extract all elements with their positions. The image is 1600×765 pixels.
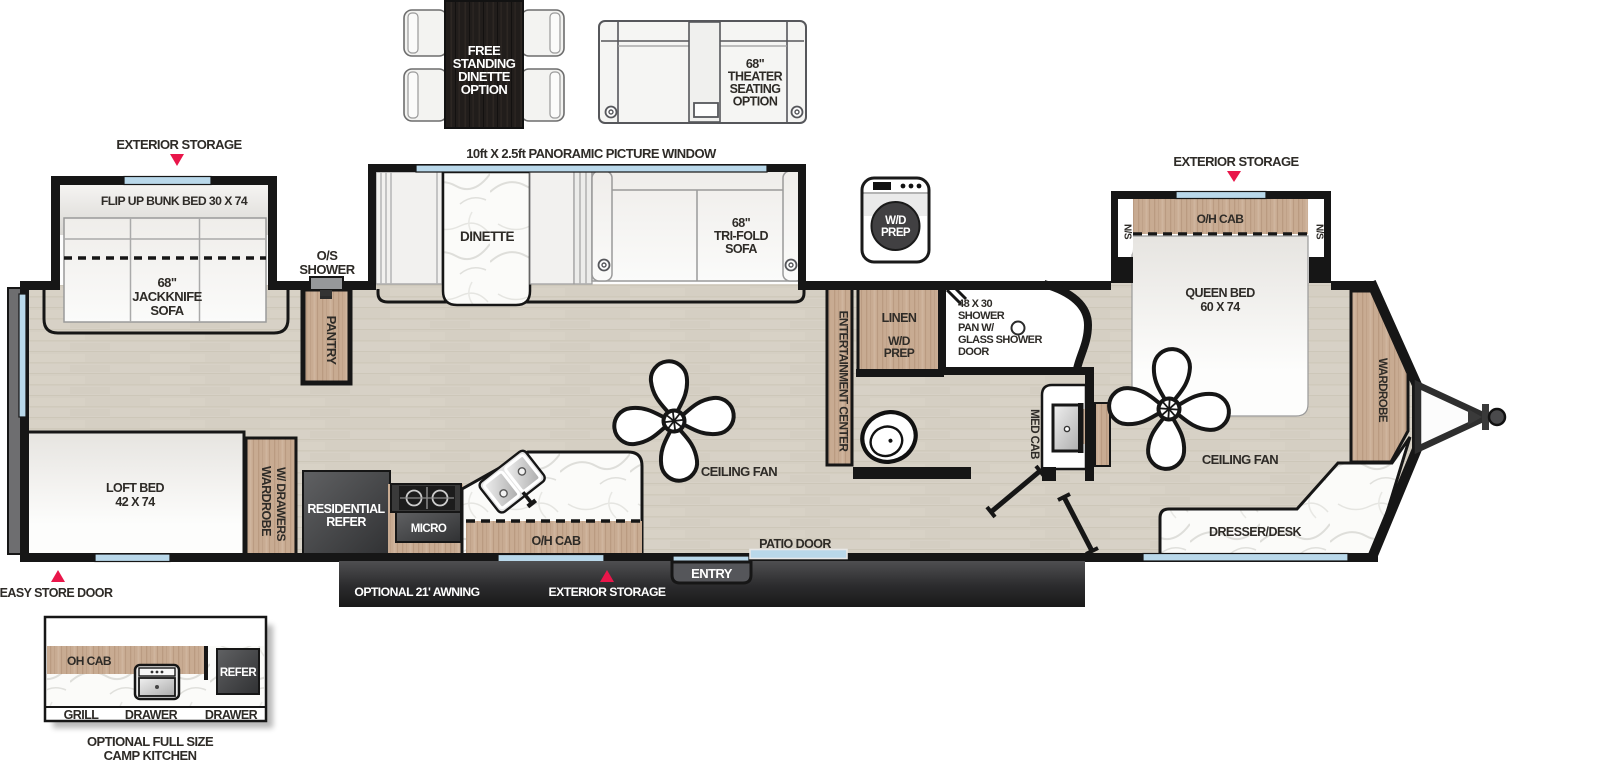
svg-text:LINEN: LINEN xyxy=(882,311,917,325)
svg-text:O/H CAB: O/H CAB xyxy=(532,534,581,548)
svg-text:JACKKNIFE: JACKKNIFE xyxy=(132,289,202,304)
svg-text:GLASS SHOWER: GLASS SHOWER xyxy=(958,334,1042,346)
svg-text:RESIDENTIAL: RESIDENTIAL xyxy=(307,502,385,516)
svg-text:OPTION: OPTION xyxy=(733,95,778,109)
svg-text:O/S: O/S xyxy=(317,248,339,263)
svg-text:W/D: W/D xyxy=(885,215,906,227)
svg-text:PAN W/: PAN W/ xyxy=(958,322,994,334)
svg-text:OH CAB: OH CAB xyxy=(67,654,112,668)
svg-text:OPTION: OPTION xyxy=(461,82,508,97)
svg-text:EASY STORE DOOR: EASY STORE DOOR xyxy=(0,586,113,600)
svg-text:DOOR: DOOR xyxy=(958,346,989,358)
svg-text:FLIP UP BUNK BED 30 X 74: FLIP UP BUNK BED 30 X 74 xyxy=(101,194,248,208)
svg-text:MED CAB: MED CAB xyxy=(1028,409,1040,459)
svg-text:PREP: PREP xyxy=(884,346,915,360)
svg-text:N/S: N/S xyxy=(1314,224,1325,240)
svg-text:CEILING FAN: CEILING FAN xyxy=(1202,452,1278,467)
svg-text:EXTERIOR STORAGE: EXTERIOR STORAGE xyxy=(1173,154,1299,169)
svg-text:10ft X 2.5ft PANORAMIC PICTURE: 10ft X 2.5ft PANORAMIC PICTURE WINDOW xyxy=(466,146,717,161)
svg-text:42 X 74: 42 X 74 xyxy=(115,495,155,509)
svg-text:REFER: REFER xyxy=(326,515,366,529)
svg-text:TRI-FOLD: TRI-FOLD xyxy=(714,229,768,243)
svg-text:SOFA: SOFA xyxy=(725,242,757,256)
svg-text:EXTERIOR STORAGE: EXTERIOR STORAGE xyxy=(116,137,242,152)
svg-text:ENTRY: ENTRY xyxy=(691,566,733,581)
svg-text:PATIO DOOR: PATIO DOOR xyxy=(759,537,831,551)
svg-text:QUEEN BED: QUEEN BED xyxy=(1185,286,1255,300)
svg-text:OPTIONAL FULL SIZE: OPTIONAL FULL SIZE xyxy=(87,734,214,749)
svg-text:DINETTE: DINETTE xyxy=(460,229,514,244)
svg-text:WARDROBE: WARDROBE xyxy=(259,466,273,536)
svg-text:CAMP KITCHEN: CAMP KITCHEN xyxy=(104,748,197,760)
svg-text:DRAWER: DRAWER xyxy=(125,708,178,722)
svg-text:LOFT BED: LOFT BED xyxy=(106,481,165,495)
svg-text:68": 68" xyxy=(732,216,751,230)
svg-text:PANTRY: PANTRY xyxy=(324,316,339,366)
svg-text:O/H CAB: O/H CAB xyxy=(1197,212,1245,226)
svg-text:N/S: N/S xyxy=(1122,224,1133,240)
svg-text:W/ DRAWERS: W/ DRAWERS xyxy=(274,467,288,541)
svg-text:CEILING FAN: CEILING FAN xyxy=(701,464,777,479)
svg-text:DRESSER/DESK: DRESSER/DESK xyxy=(1209,525,1302,539)
svg-text:68": 68" xyxy=(158,275,177,290)
svg-text:REFER: REFER xyxy=(220,667,257,679)
svg-text:GRILL: GRILL xyxy=(64,708,100,722)
svg-text:DRAWER: DRAWER xyxy=(205,708,258,722)
svg-text:60 X 74: 60 X 74 xyxy=(1200,300,1240,314)
svg-text:WARDROBE: WARDROBE xyxy=(1376,358,1388,423)
svg-text:PREP: PREP xyxy=(881,227,911,239)
svg-text:SOFA: SOFA xyxy=(150,303,184,318)
svg-text:SHOWER: SHOWER xyxy=(958,310,1005,322)
svg-text:SHOWER: SHOWER xyxy=(299,262,355,277)
svg-text:OPTIONAL 21' AWNING: OPTIONAL 21' AWNING xyxy=(354,585,479,599)
svg-text:EXTERIOR STORAGE: EXTERIOR STORAGE xyxy=(549,585,666,599)
svg-text:MICRO: MICRO xyxy=(411,523,447,535)
svg-text:ENTERTAINMENT CENTER: ENTERTAINMENT CENTER xyxy=(837,311,851,453)
svg-text:48 X 30: 48 X 30 xyxy=(958,298,993,310)
